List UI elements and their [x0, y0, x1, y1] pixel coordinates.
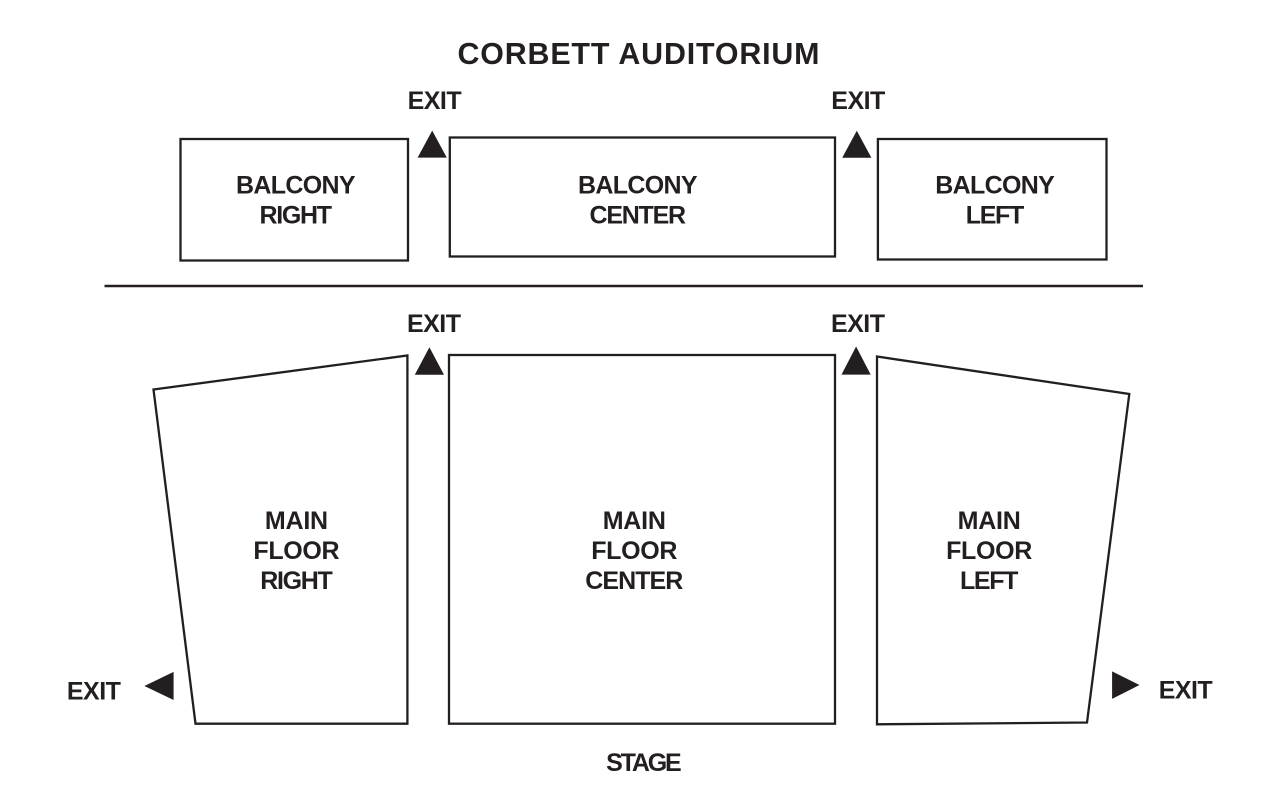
- svg-text:MAIN: MAIN: [958, 507, 1021, 535]
- svg-text:STAGE: STAGE: [606, 749, 682, 777]
- svg-text:LEFT: LEFT: [966, 202, 1025, 230]
- svg-text:MAIN: MAIN: [265, 507, 328, 535]
- svg-text:EXIT: EXIT: [1159, 677, 1213, 705]
- svg-text:EXIT: EXIT: [831, 87, 885, 115]
- svg-text:RIGHT: RIGHT: [260, 202, 333, 230]
- svg-text:EXIT: EXIT: [831, 310, 885, 338]
- svg-text:BALCONY: BALCONY: [236, 172, 356, 200]
- svg-text:CENTER: CENTER: [590, 202, 687, 230]
- svg-text:MAIN: MAIN: [603, 507, 666, 535]
- svg-text:LEFT: LEFT: [960, 567, 1018, 595]
- svg-text:FLOOR: FLOOR: [591, 537, 677, 565]
- svg-text:BALCONY: BALCONY: [935, 172, 1055, 200]
- svg-text:CENTER: CENTER: [585, 567, 683, 595]
- svg-text:FLOOR: FLOOR: [946, 537, 1032, 565]
- svg-text:EXIT: EXIT: [407, 310, 461, 338]
- svg-text:BALCONY: BALCONY: [578, 172, 698, 200]
- svg-text:EXIT: EXIT: [67, 678, 121, 706]
- svg-text:EXIT: EXIT: [408, 87, 462, 115]
- svg-text:CORBETT AUDITORIUM: CORBETT AUDITORIUM: [458, 37, 820, 71]
- svg-text:RIGHT: RIGHT: [260, 567, 333, 595]
- svg-text:FLOOR: FLOOR: [253, 537, 339, 565]
